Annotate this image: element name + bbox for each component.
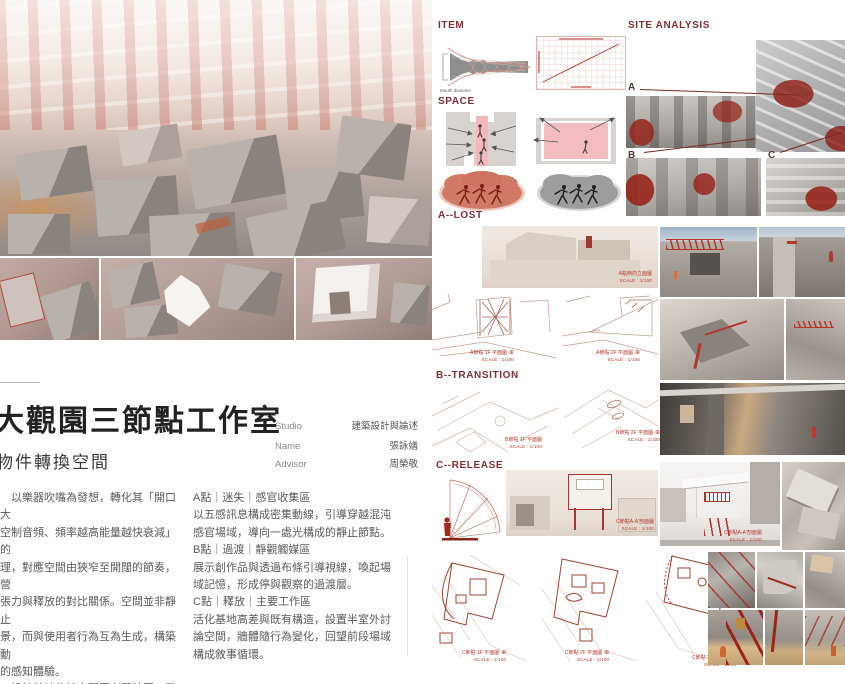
tilted-slab [786,468,838,513]
fold-line [407,556,408,656]
slab-shadow [680,319,750,363]
b-render-interior [660,383,845,455]
red-leg [602,508,604,530]
a-render-4 [786,299,845,380]
ground-shadow [660,540,780,546]
red-pole [771,610,778,652]
credit-value: 建築設計與論述 [323,418,418,432]
red-cables [708,552,755,608]
caption-c-elevation: C節點A-A'剖面圖 SCALE : 1/100 [724,530,762,543]
c-render-grid-6 [805,610,845,665]
wall-left [660,488,686,522]
mouth-diameter-label: Mouth diameter [440,88,472,93]
credit-row-studio: Studio建築設計與論述 [275,418,423,432]
roof-plane [682,473,748,489]
c-render-house [660,462,780,546]
section-header-item: ITEM [438,20,464,31]
massing-block [334,115,411,180]
a-render-2 [759,227,845,297]
caption-c-section: C節點A-A'剖面圖 SCALE : 1/100 [616,519,654,532]
a-render-1 [660,227,757,297]
credit-label: Name [275,441,323,452]
site-photo-c [766,158,845,216]
credit-value: 張詠嫸 [323,438,418,452]
section-header-space: SPACE [438,96,475,107]
credit-value: 周榮敬 [323,456,418,470]
hero-aerial-render [0,0,432,256]
model-photo-3 [296,258,432,340]
beige-block [810,555,834,574]
ceiling-beam [660,384,845,396]
red-detail [787,241,797,244]
c-render-grid-3 [805,552,845,608]
site-photo-b [626,158,761,216]
c-plan-1f-drawing [430,545,534,663]
title-rule [0,382,40,383]
massing-block [185,134,286,209]
section-header-a-lost: A--LOST [438,210,483,221]
intro-column-1: 以樂器吹嘴為發想，轉化其「開口大 空制音頻、頻率越高能量越快衰減」的 理，對應空… [0,490,186,684]
north-arrow-icon: ⊕ [501,650,506,656]
massing-block-light [366,196,431,246]
section-mass [506,232,576,262]
red-leg [574,508,576,530]
red-truss [794,321,834,328]
a-render-3 [660,299,784,380]
red-outline-structure [0,272,45,327]
section-mass [490,260,640,280]
massing-block [390,282,430,326]
model-wall [773,237,795,297]
crowd-blob-red [436,166,528,216]
credit-label: Advisor [275,459,323,470]
chart-line-series [543,44,619,82]
massing-block [246,199,346,256]
caption-b-plan-1f: B節點 1F 平面圖 SCALE : 1/100 [505,437,542,450]
mouthpiece-diagram: Mouth diameter [438,40,534,96]
north-arrow-icon: ⊕ [604,650,609,656]
page-title: 大觀園三節點工作室 [0,396,282,440]
mouthpiece-silhouette [450,53,528,81]
artwork-panel [680,405,694,423]
chart-plot [537,37,625,89]
tilted-slab [798,506,841,539]
space-diagram-release [528,108,622,170]
figure-red [812,427,816,438]
caption-a-section: A點西向立面圖 SCALE : 1/100 [619,271,652,284]
north-arrow-icon: ⊕ [635,350,640,356]
massing-block [218,263,283,316]
red-truss [666,239,724,250]
section-header-b-transition: B--TRANSITION [436,370,519,381]
intro-column-2: A點｜迷失｜感官收集區 以五感訊息構成密集動線，引導穿越混沌 感官場域，導向一處… [193,490,411,664]
figure-red-dress [829,251,833,262]
pink-corridor [476,116,488,166]
credit-row-advisor: Advisor周榮敬 [275,456,423,470]
model-photo-1 [0,258,99,340]
c-render-grid-4 [708,610,763,665]
massing-block [106,261,161,308]
credit-row-name: Name張詠嫸 [275,438,423,452]
caption-a-plan-1f: A節點 1F 平面圖⊕ SCALE : 1/100 [470,350,514,363]
model-void [690,253,720,275]
massing-block [40,281,99,340]
model-photo-2 [101,258,294,340]
c-section-render: C節點A-A'剖面圖 SCALE : 1/100 [506,470,658,536]
section-header-site-analysis: SITE ANALYSIS [628,20,710,31]
red-detail [586,236,592,248]
caption-a-plan-2f: A節點 2F 平面圖⊕ SCALE : 1/100 [596,350,640,363]
pink-room [544,123,608,159]
c-render-grid-5 [765,610,803,665]
frame-window [576,479,604,490]
c-render-grid-2 [757,552,803,608]
crowd-blob-gray [534,166,624,216]
item-chart [536,36,626,90]
caption-c-plan-2f: C節點 2F 平面圖⊕ SCALE : 1/100 [565,650,609,663]
north-arrow-icon: ⊕ [509,350,514,356]
wall-right [750,462,780,524]
figure-orange [831,646,836,656]
c-plan-2f-drawing [536,545,640,663]
red-cables [805,616,845,646]
page-subtitle: 物件轉換空間 [0,448,110,473]
massing-block [8,214,70,254]
presentation-board: 大觀園三節點工作室 物件轉換空間 Studio建築設計與論述 Name張詠嫸 A… [0,0,845,684]
credit-label: Studio [275,421,323,432]
c-render-massing [782,462,845,550]
a-section-render: A點西向立面圖 SCALE : 1/100 [482,226,658,288]
mass-dark [516,504,534,526]
artwork-panel [736,618,745,629]
box-opening [329,291,350,314]
figure-orange [674,271,677,279]
c-fan-diagram [438,468,502,550]
dimension-bracket [443,54,448,80]
c-render-grid-1 [708,552,755,608]
caption-c-plan-1f: C節點 1F 平面圖⊕ SCALE : 1/100 [462,650,506,663]
figure-orange [720,646,726,657]
caption-b-plan-2f: B節點 2F 平面圖⊕ SCALE : 1/100 [616,430,660,443]
red-railing [704,492,730,502]
space-diagram-compress [440,108,522,170]
site-label-a: A [628,82,635,93]
